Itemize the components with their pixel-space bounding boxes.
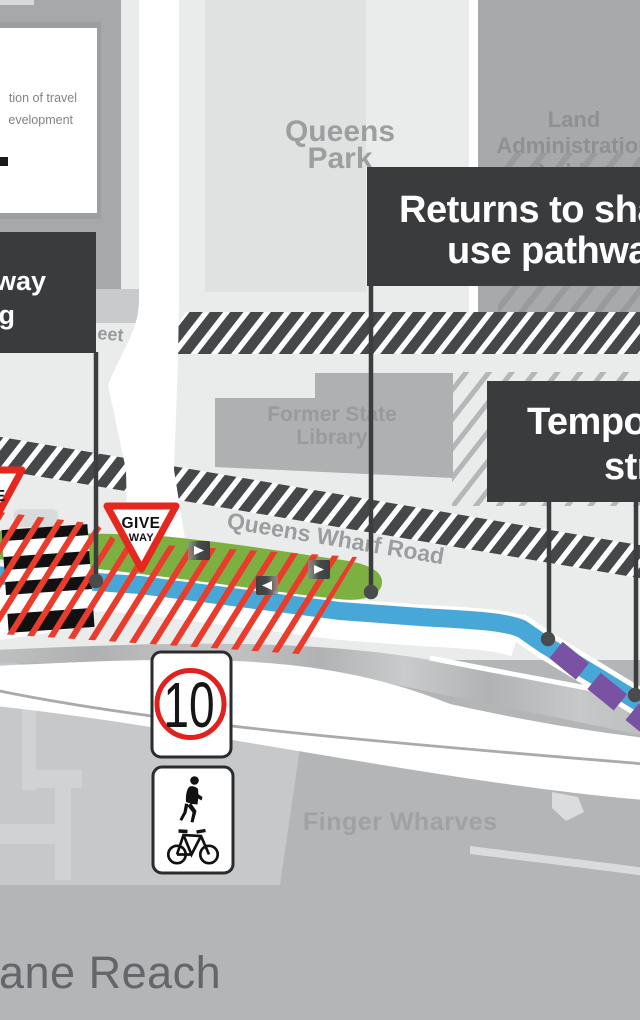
- svg-text:GIVE: GIVE: [0, 488, 5, 505]
- svg-text:10: 10: [163, 670, 214, 741]
- svg-text:Land: Land: [548, 107, 601, 132]
- svg-text:GIVE: GIVE: [121, 515, 160, 532]
- svg-text:use pathway: use pathway: [447, 230, 640, 272]
- svg-text:WAY: WAY: [129, 532, 155, 544]
- svg-text:g: g: [0, 300, 15, 330]
- svg-text:Park: Park: [307, 142, 372, 175]
- svg-text:way: way: [0, 266, 46, 296]
- svg-text:Finger Wharves: Finger Wharves: [303, 808, 498, 836]
- svg-text:street: street: [604, 446, 640, 488]
- svg-text:eet: eet: [97, 323, 125, 345]
- svg-text:Library: Library: [296, 426, 368, 449]
- svg-text:Returns to shared: Returns to shared: [399, 189, 640, 231]
- svg-text:ane Reach: ane Reach: [0, 947, 221, 998]
- svg-text:Former State: Former State: [267, 403, 397, 426]
- svg-text:Temporary: Temporary: [527, 401, 640, 443]
- svg-text:evelopment: evelopment: [8, 113, 73, 127]
- svg-text:tion of travel: tion of travel: [9, 91, 77, 105]
